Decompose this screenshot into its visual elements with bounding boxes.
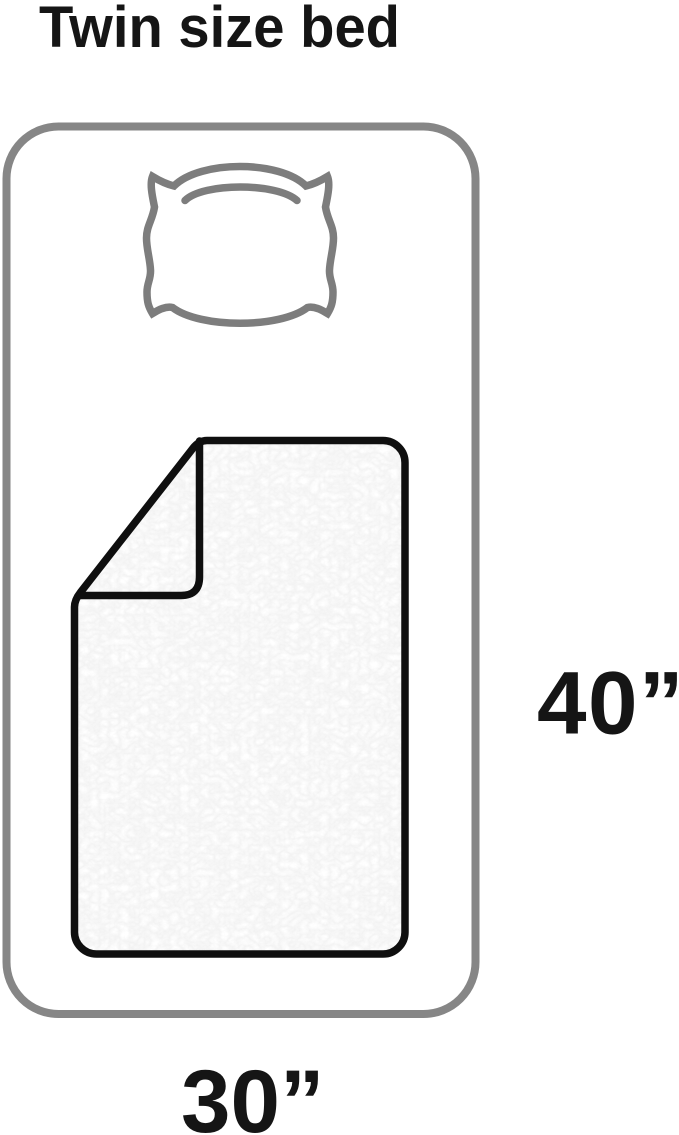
svg-text:40”: 40” [537, 653, 679, 753]
svg-text:30”: 30” [181, 1051, 325, 1135]
svg-text:Twin size bed: Twin size bed [39, 0, 400, 60]
